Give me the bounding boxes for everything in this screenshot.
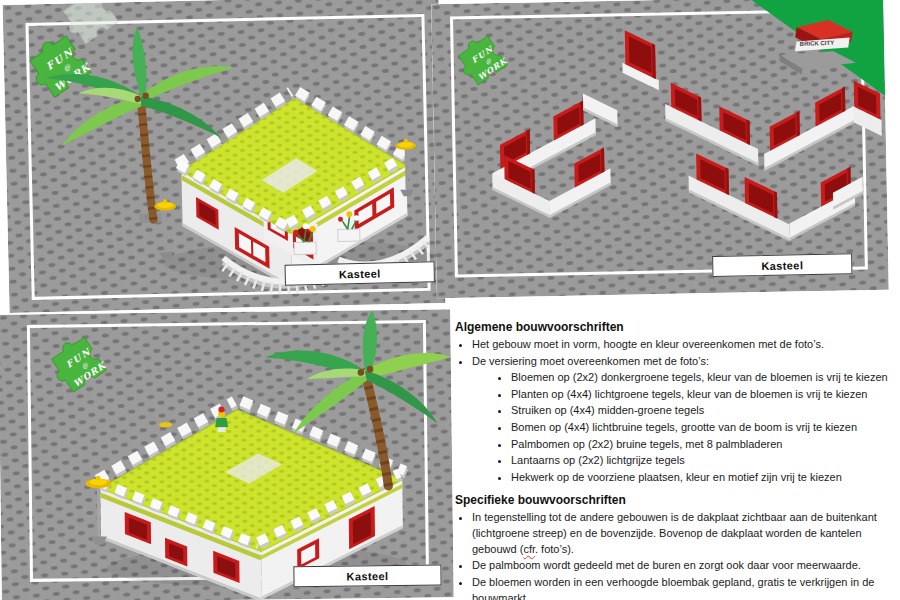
bullet-item: De bloemen worden in een verhoogde bloem… [472,575,897,600]
decoration-rules-list: Bloemen op (2x2) donkergroene tegels, kl… [455,370,897,485]
figure-caption-walls: Kasteel [712,253,852,277]
brick-city-text: BRICK CITY [800,40,835,47]
sub-bullet-item: Palmbomen op (2x2) bruine tegels, met 8 … [511,437,897,453]
instructions-panel: Algemene bouwvoorschriften Het gebouw mo… [455,320,897,600]
figure-caption-back: Kasteel [293,564,441,587]
sub-bullet-item: Struiken op (4x4) midden-groene tegels [511,403,897,419]
sub-bullet-item: Hekwerk op de voorziene plaatsen, kleur … [511,470,897,486]
bullet-text: . foto’s). [535,543,574,555]
castle-back-render: FUN @ WORK [0,309,454,600]
general-rules-list: Het gebouw moet in vorm, hoogte en kleur… [455,337,897,369]
specific-rules-list: In tegenstelling tot de andere gebouwen … [455,510,897,600]
bullet-item: Het gebouw moet in vorm, hoogte en kleur… [472,337,897,353]
figure-wall-layout: FUN @ WORK BRICK CITY [431,0,889,298]
figure-castle-back: FUN @ WORK [0,309,454,600]
sub-bullet-item: Lantaarns op (2x2) lichtgrijze tegels [511,453,897,469]
specific-rules-heading: Specifieke bouwvoorschriften [455,493,897,507]
figure-caption-front: Kasteel [285,261,435,285]
figure-castle-front: FUN @ WORK [3,0,446,313]
document-page: FUN @ WORK [0,0,900,600]
misspelled-word: cfr [523,543,535,555]
sub-bullet-item: Bloemen op (2x2) donkergroene tegels, kl… [511,370,897,386]
general-rules-heading: Algemene bouwvoorschriften [455,320,897,334]
bullet-item: In tegenstelling tot de andere gebouwen … [472,510,897,557]
sub-bullet-item: Planten op (4x4) lichtgroene tegels, kle… [511,387,897,403]
bullet-item: De palmboom wordt gedeeld met de buren e… [472,558,897,574]
bullet-item: De versiering moet overeenkomen met de f… [472,354,897,370]
sub-bullet-item: Bomen op (4x4) lichtbruine tegels, groot… [511,420,897,436]
